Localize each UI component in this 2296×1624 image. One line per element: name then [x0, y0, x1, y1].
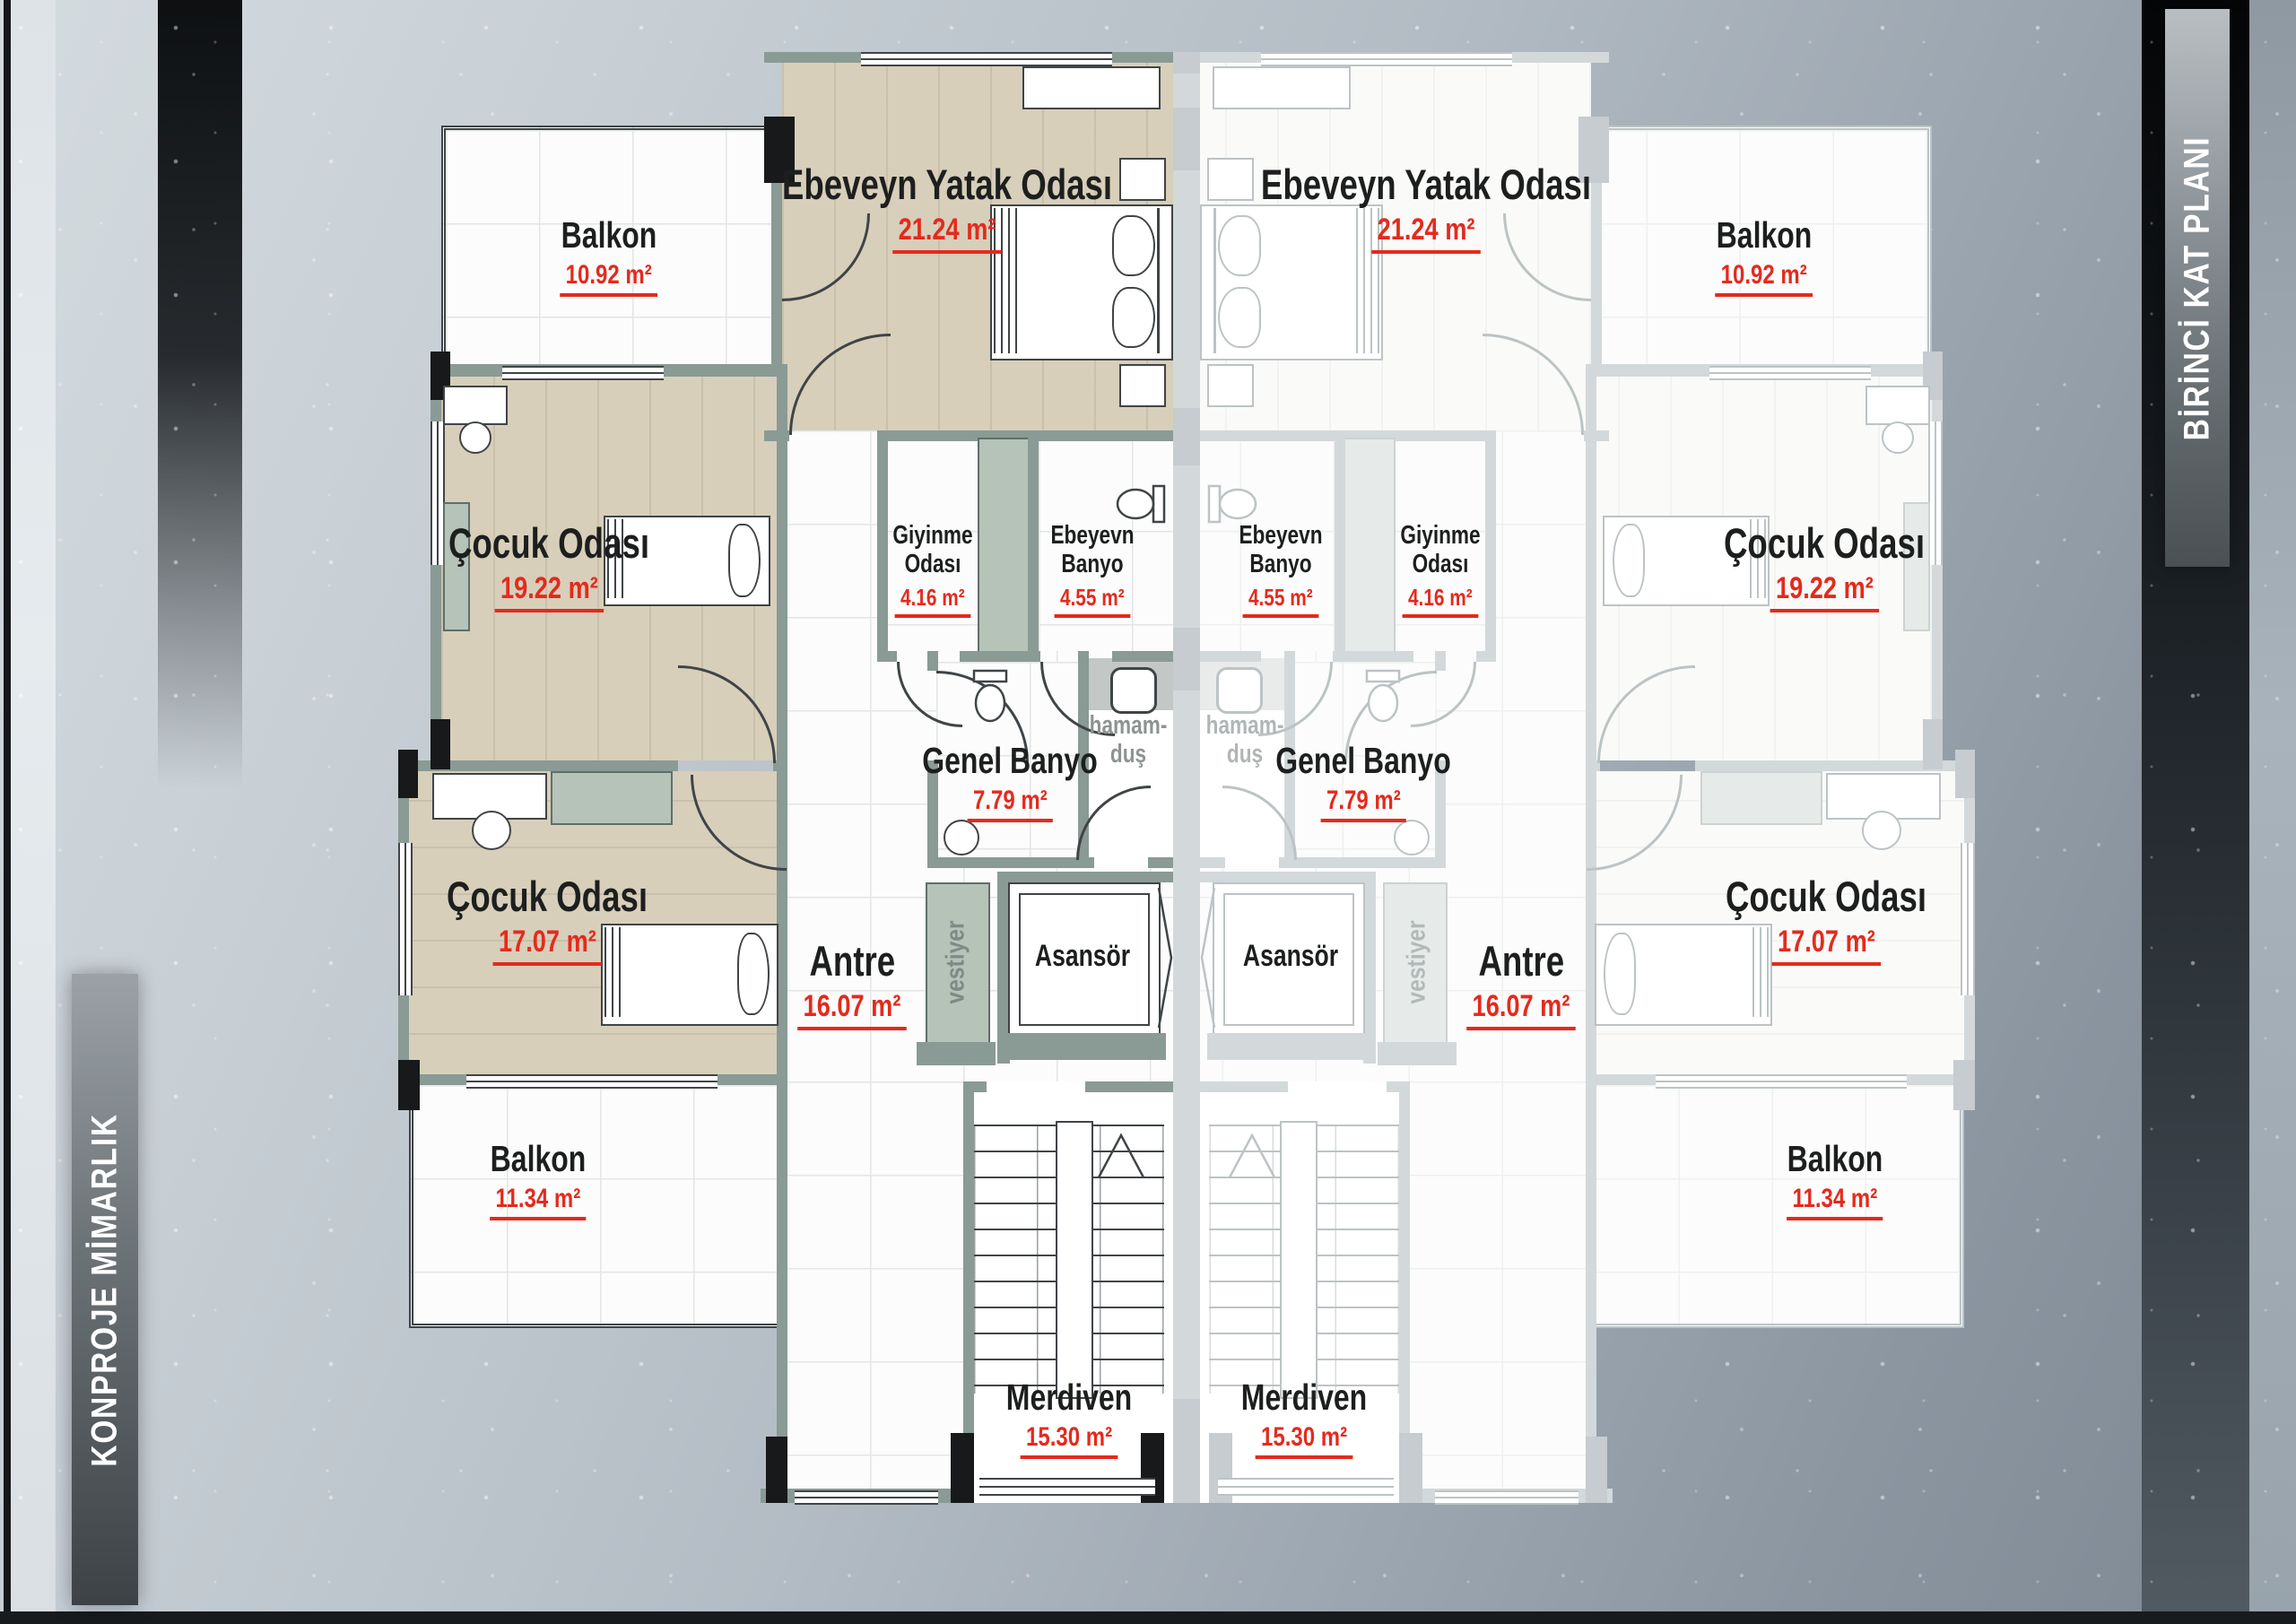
room-label-balcony-bottom-left: Balkon 11.34 m²: [477, 1139, 600, 1220]
plan-title: BİRİNCİ KAT PLANI: [2178, 135, 2218, 440]
room-label-balcony-top-right: Balkon 10.92 m²: [1703, 215, 1826, 297]
left-edge-dark-line: [4, 0, 11, 1624]
room-label-kids-lower-right: Çocuk Odası 17.07 m²: [1697, 873, 1954, 966]
room-label-balcony-top-left: Balkon 10.92 m²: [548, 215, 671, 297]
room-label-antre-left: Antre 16.07 m²: [784, 938, 920, 1030]
right-edge-light-strip: [2249, 0, 2296, 1624]
room-label-hamam-right: hamam-duş: [1173, 712, 1317, 769]
room-label-stairs-right: Merdiven 15.30 m²: [1223, 1377, 1385, 1459]
floor-plan-poster: BİRİNCİ KAT PLANI KONPROJE MİMARLIK: [0, 0, 2296, 1624]
room-labels: Balkon 10.92 m² Ebeveyn Yatak Odası 21.2…: [395, 52, 1979, 1503]
top-left-dark-band: [158, 0, 242, 789]
room-label-vestiyer-right: vestiyer: [1403, 920, 1432, 1003]
floor-plan: Balkon 10.92 m² Ebeveyn Yatak Odası 21.2…: [395, 52, 1991, 1505]
plan-title-bar: BİRİNCİ KAT PLANI: [2165, 9, 2230, 567]
room-label-stairs-left: Merdiven 15.30 m²: [988, 1377, 1150, 1459]
room-label-balcony-bottom-right: Balkon 11.34 m²: [1774, 1139, 1897, 1220]
firm-title: KONPROJE MİMARLIK: [85, 1113, 126, 1466]
room-label-master-bath-right: Ebeyevn Banyo 4.55 m²: [1209, 522, 1352, 618]
bottom-dark-line: [0, 1611, 2296, 1624]
room-label-antre-right: Antre 16.07 m²: [1453, 938, 1589, 1030]
firm-title-bar: KONPROJE MİMARLIK: [72, 974, 138, 1605]
room-label-vestiyer-left: vestiyer: [942, 920, 971, 1003]
room-label-dressing-left: Giyinme Odası 4.16 m²: [861, 522, 1004, 618]
room-label-master-right: Ebeveyn Yatak Odası 21.24 m²: [1214, 161, 1638, 254]
room-label-dressing-right: Giyinme Odası 4.16 m²: [1369, 522, 1512, 618]
room-label-master-bath-left: Ebeyevn Banyo 4.55 m²: [1021, 522, 1164, 618]
room-label-master-left: Ebeveyn Yatak Odası 21.24 m²: [735, 161, 1159, 254]
room-label-kids-upper-left: Çocuk Odası 19.22 m²: [420, 520, 677, 612]
room-label-elevator-right: Asansör: [1230, 940, 1352, 973]
room-label-kids-upper-right: Çocuk Odası 19.22 m²: [1695, 520, 1952, 612]
room-label-elevator-left: Asansör: [1022, 940, 1144, 973]
room-label-kids-lower-left: Çocuk Odası 17.07 m²: [418, 873, 675, 966]
left-edge-light-strip: [11, 0, 56, 1624]
